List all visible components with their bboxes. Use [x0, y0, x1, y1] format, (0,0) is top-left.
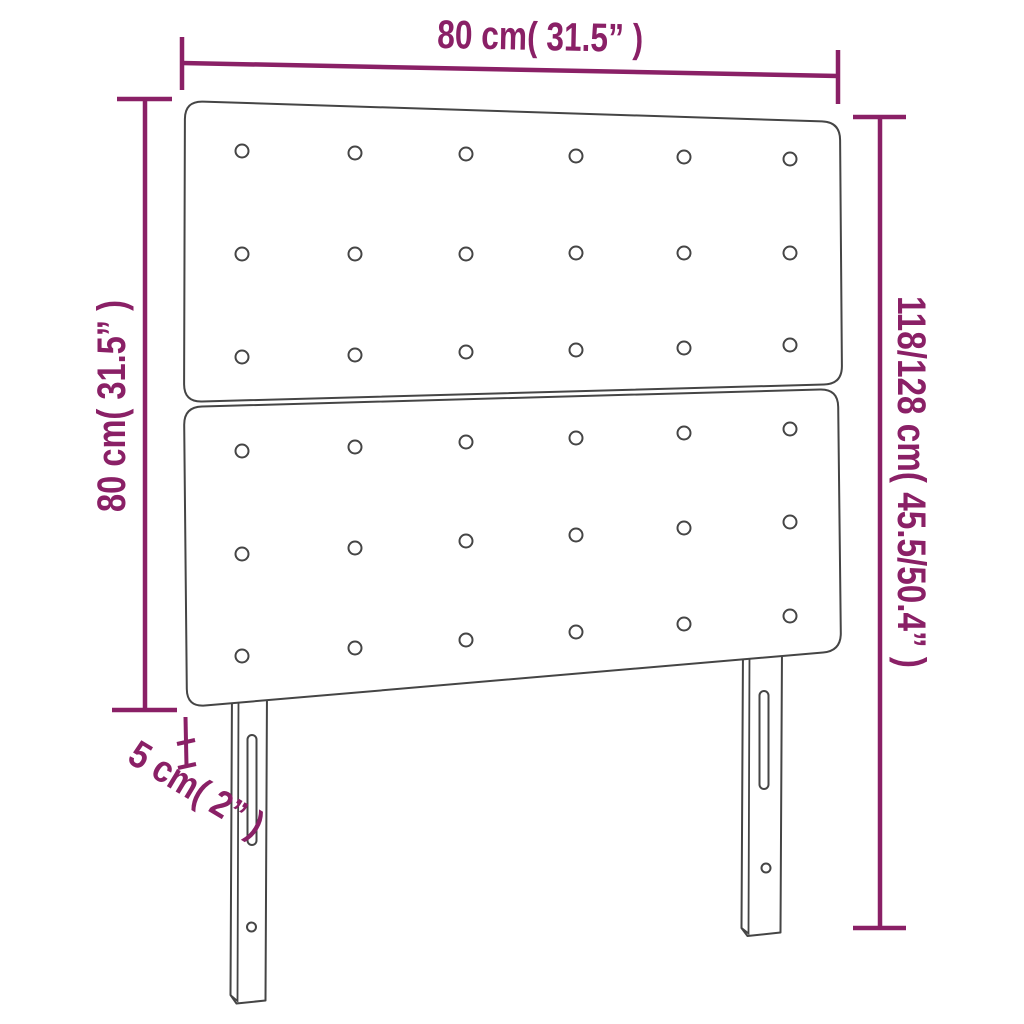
- right-leg-slot: [760, 691, 769, 789]
- left-leg: [231, 690, 268, 1004]
- dimension-line: [182, 63, 838, 76]
- dimension-end-tick: [177, 740, 195, 744]
- button: [349, 349, 362, 362]
- button: [460, 148, 473, 161]
- button: [236, 248, 249, 261]
- button: [678, 522, 691, 535]
- right-leg: [742, 648, 783, 936]
- button: [570, 150, 583, 163]
- button: [678, 247, 691, 260]
- button: [460, 436, 473, 449]
- button: [349, 147, 362, 160]
- button: [236, 145, 249, 158]
- right-leg-screw-hole: [762, 864, 771, 873]
- button: [349, 542, 362, 555]
- headboard-drawing: [184, 102, 842, 1004]
- button: [460, 634, 473, 647]
- button: [784, 610, 797, 623]
- button: [349, 441, 362, 454]
- button: [570, 432, 583, 445]
- dimension-label-total-height: 118/128 cm( 45.5/50.4” ): [889, 296, 933, 668]
- diagram-canvas: 80 cm( 31.5” ) 80 cm( 31.5” ) 118/128 cm…: [0, 0, 1024, 1024]
- dimension-height-left: 80 cm( 31.5” ): [90, 99, 177, 710]
- left-leg-screw-hole: [247, 923, 256, 932]
- button: [236, 548, 249, 561]
- button: [784, 153, 797, 166]
- headboard-dimension-diagram: 80 cm( 31.5” ) 80 cm( 31.5” ) 118/128 cm…: [0, 0, 1024, 1024]
- button: [460, 346, 473, 359]
- button: [460, 535, 473, 548]
- button: [236, 650, 249, 663]
- lower-panel: [184, 389, 841, 705]
- button: [570, 247, 583, 260]
- button: [349, 642, 362, 655]
- button: [236, 445, 249, 458]
- button: [460, 248, 473, 261]
- button: [570, 344, 583, 357]
- dimension-width-top: 80 cm( 31.5” ): [182, 13, 838, 104]
- button: [678, 151, 691, 164]
- button: [678, 427, 691, 440]
- button: [349, 248, 362, 261]
- button: [236, 351, 249, 364]
- dimension-label-height: 80 cm( 31.5” ): [90, 300, 134, 512]
- button: [784, 423, 797, 436]
- button: [570, 626, 583, 639]
- button: [678, 618, 691, 631]
- button: [784, 339, 797, 352]
- upper-panel: [184, 102, 842, 402]
- button: [784, 247, 797, 260]
- dimension-label-width: 80 cm( 31.5” ): [437, 13, 644, 61]
- button: [570, 529, 583, 542]
- button: [678, 342, 691, 355]
- dimension-total-height-right: 118/128 cm( 45.5/50.4” ): [853, 117, 933, 928]
- button: [784, 516, 797, 529]
